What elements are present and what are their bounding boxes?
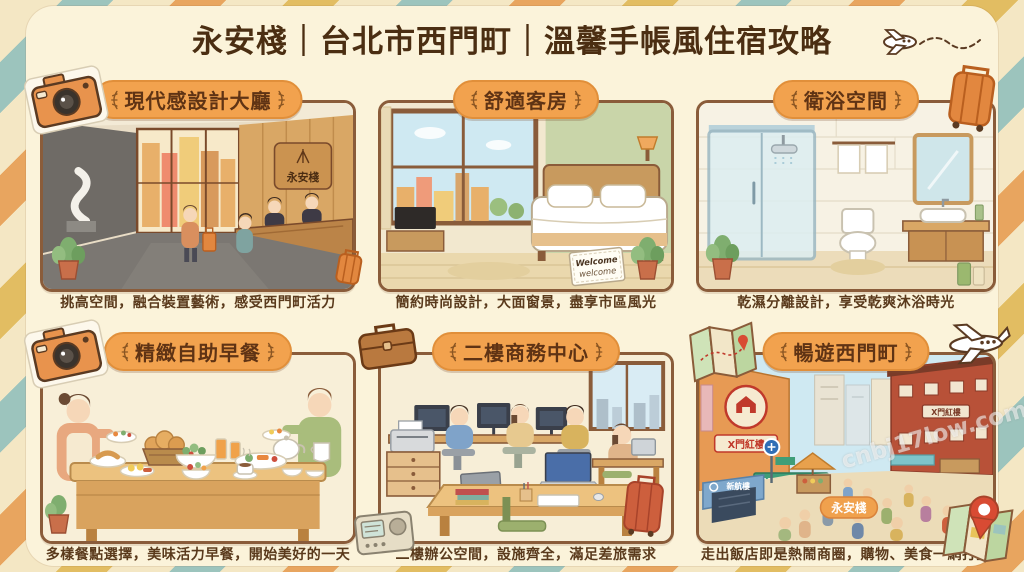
laurel-right-icon	[594, 340, 606, 364]
brick-building-sign-text: X門紅樓	[931, 407, 961, 417]
laurel-right-icon	[266, 340, 278, 364]
laurel-left-icon	[787, 88, 799, 112]
page-title: 永安棧｜台北市西門町｜溫馨手帳風住宿攻略	[0, 16, 1024, 61]
laurel-right-icon	[904, 340, 916, 364]
lobby-sign-text: 永安棧	[286, 170, 319, 184]
room-rug	[448, 262, 530, 280]
brick-building: X門紅樓	[887, 357, 993, 475]
room-header-badge: 舒適客房	[453, 80, 599, 119]
street-header-label: 暢遊西門町	[794, 337, 899, 366]
business-illustration	[378, 352, 674, 544]
lobby-header-label: 現代感設計大廳	[125, 85, 272, 114]
bath-header-badge: 衛浴空間	[773, 80, 919, 119]
laurel-right-icon	[277, 88, 289, 112]
lobby-caption: 挑高空間，融合裝置藝術，感受西門町活力	[40, 292, 356, 312]
street-hotel-badge: 永安棧	[821, 497, 878, 518]
room-curtain	[381, 107, 391, 229]
street-caption: 走出飯店即是熱鬧商圈，購物、美食一網打盡	[696, 544, 996, 564]
street-hotel-badge-text: 永安棧	[830, 501, 866, 515]
panel-group-street: 暢遊西門町	[696, 332, 996, 572]
lobby-header-badge: 現代感設計大廳	[94, 80, 303, 119]
red-house-sign-text: X門紅樓	[728, 438, 765, 451]
panel-group-bath: 衛浴空間	[696, 80, 996, 320]
street-illustration: X門紅樓 XIMENO	[696, 352, 996, 544]
laurel-right-icon	[893, 88, 905, 112]
distant-buildings	[815, 375, 895, 445]
bath-caption: 乾濕分離設計，享受乾爽沐浴時光	[696, 292, 996, 312]
laurel-left-icon	[777, 340, 789, 364]
lobby-hotel-sign: 永安棧	[275, 143, 332, 189]
panel-group-breakfast: 精緻自助早餐	[40, 332, 356, 572]
laurel-left-icon	[446, 340, 458, 364]
bath-illustration	[696, 100, 996, 292]
room-window	[391, 111, 536, 223]
street-header-badge: 暢遊西門町	[763, 332, 930, 371]
room-header-label: 舒適客房	[484, 85, 568, 114]
panel-group-business: 二樓商務中心	[378, 332, 674, 572]
laurel-left-icon	[118, 340, 130, 364]
mrt-entrance-sign-text: 新航樓	[726, 481, 750, 491]
laurel-left-icon	[467, 88, 479, 112]
panel-group-lobby: 現代感設計大廳	[40, 80, 356, 320]
breakfast-header-badge: 精緻自助早餐	[104, 332, 292, 371]
welcome-card: Welcome welcome	[569, 247, 625, 285]
business-window	[591, 363, 664, 429]
breakfast-header-label: 精緻自助早餐	[135, 337, 261, 366]
business-header-badge: 二樓商務中心	[432, 332, 620, 371]
milk-jug	[311, 443, 329, 462]
poster: 永安棧｜台北市西門町｜溫馨手帳風住宿攻略 現代感設計大廳	[0, 0, 1024, 572]
business-suitcase	[623, 475, 664, 537]
printer-station	[387, 421, 440, 496]
breakfast-illustration	[40, 352, 356, 544]
room-illustration: Welcome welcome	[378, 100, 674, 292]
red-house-building: X門紅樓	[699, 361, 789, 491]
lobby-dark-wall	[43, 121, 137, 253]
bath-header-label: 衛浴空間	[804, 85, 888, 114]
laurel-right-icon	[573, 88, 585, 112]
panel-group-room: 舒適客房	[378, 80, 674, 320]
breakfast-caption: 多樣餐點選擇，美味活力早餐，開始美好的一天	[40, 544, 356, 564]
bath-mat	[830, 259, 885, 275]
business-caption: 二樓辦公空間，設施齊全，滿足差旅需求	[378, 544, 674, 564]
business-header-label: 二樓商務中心	[463, 337, 589, 366]
lobby-illustration: 永安棧	[40, 100, 356, 292]
laurel-left-icon	[108, 88, 120, 112]
room-caption: 簡約時尚設計，大面窗景，盡享市區風光	[378, 292, 674, 312]
